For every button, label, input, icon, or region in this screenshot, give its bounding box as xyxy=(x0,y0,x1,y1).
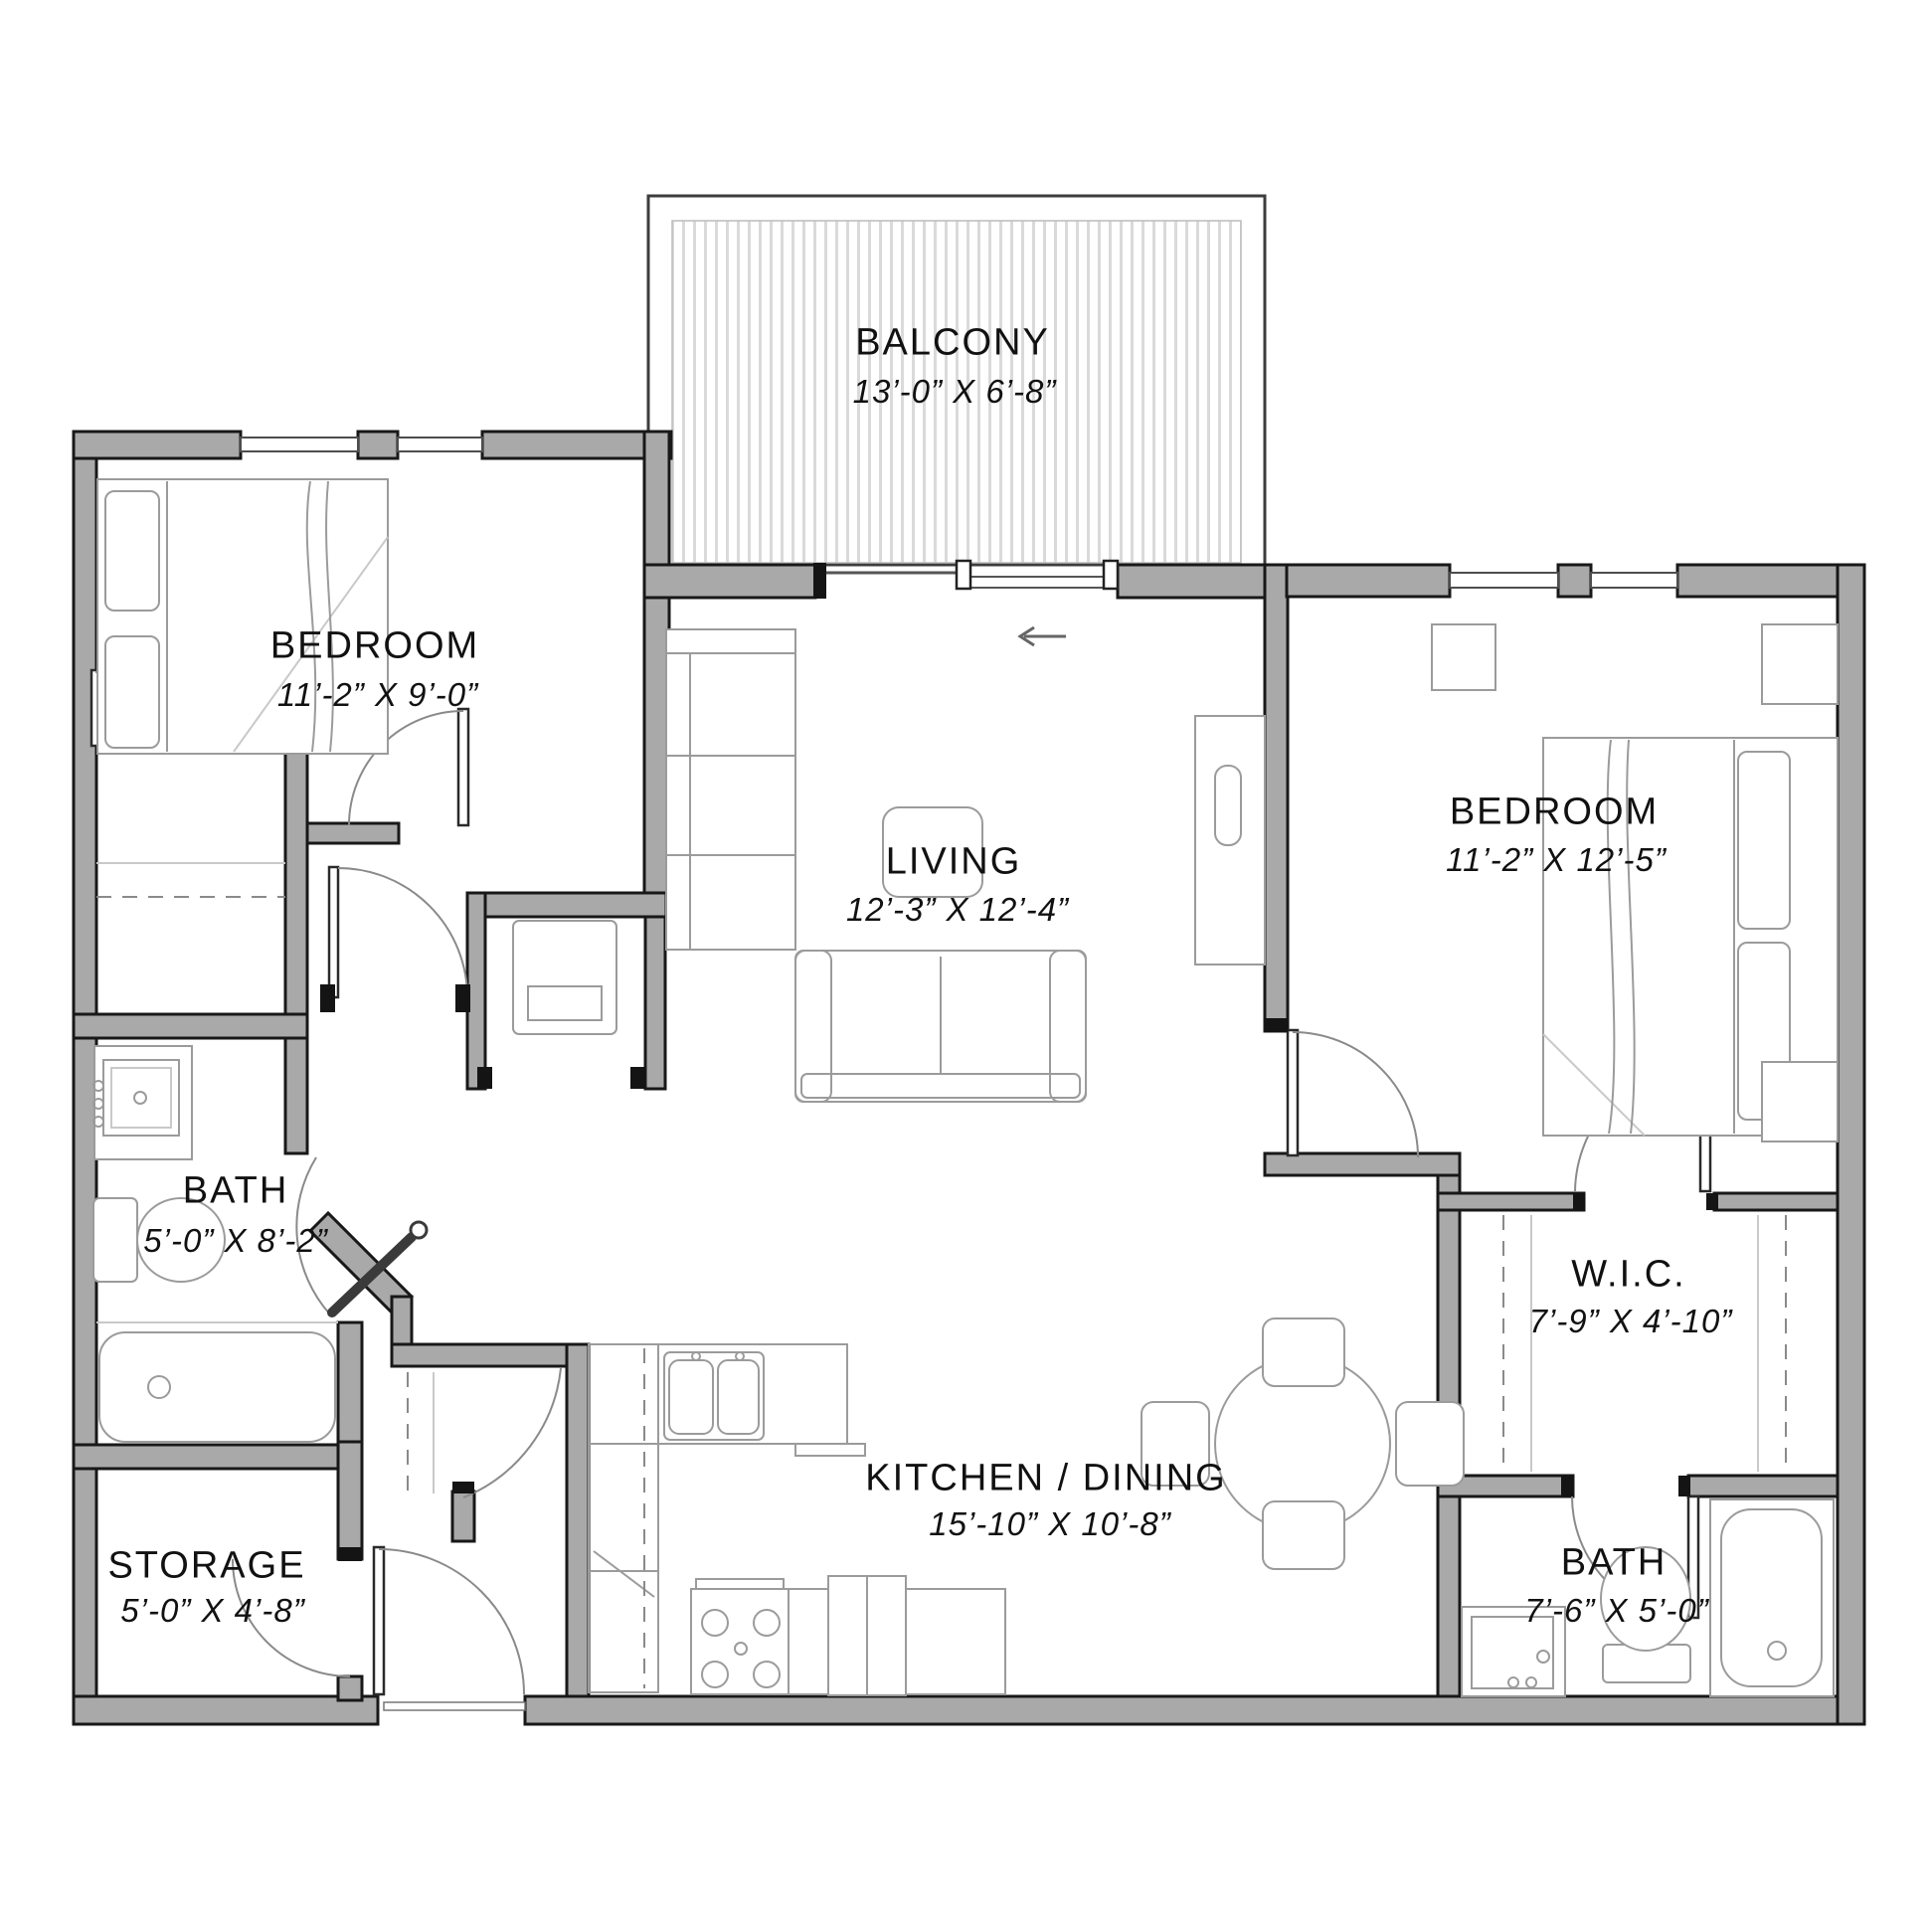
room-dims-kitchen-dining: 15’-10” X 10’-8” xyxy=(929,1505,1170,1543)
wall-hall-stub xyxy=(452,1492,474,1541)
room-dims-storage: 5’-0” X 4’-8” xyxy=(120,1592,304,1630)
window-bedroom1-b xyxy=(398,438,482,451)
bath2-tub xyxy=(1710,1499,1834,1696)
dining-chair xyxy=(1396,1402,1464,1486)
wall-bath1-north xyxy=(74,1014,307,1038)
kitchen-cabinet xyxy=(906,1589,1005,1694)
wall-south-left xyxy=(74,1696,378,1724)
kitchen-counter xyxy=(789,1589,828,1694)
room-label-bedroom-2: BEDROOM xyxy=(1450,791,1659,834)
room-dims-bath-1: 5’-0” X 8’-2” xyxy=(143,1222,327,1260)
kitchen-fridge xyxy=(828,1576,906,1695)
room-label-bath-1: BATH xyxy=(183,1170,289,1213)
wall-bedroom1-door-stub xyxy=(307,823,399,843)
wall-bedroom2-west xyxy=(1265,565,1288,1031)
dining-set xyxy=(1142,1318,1464,1569)
wall-north-right-a xyxy=(1287,565,1450,597)
media-shelf xyxy=(666,629,795,950)
kitchen-hall-door xyxy=(452,1368,561,1497)
room-dims-living: 12’-3” X 12’-4” xyxy=(846,891,1069,929)
room-label-living: LIVING xyxy=(886,841,1022,884)
nightstand xyxy=(1762,1062,1838,1142)
room-label-balcony: BALCONY xyxy=(855,322,1050,365)
balcony-door-arrow xyxy=(1020,627,1066,645)
kitchen-sink-counter xyxy=(658,1344,865,1456)
room-label-bath-2: BATH xyxy=(1561,1542,1668,1585)
room-dims-bedroom-2: 11’-2” X 12’-5” xyxy=(1446,841,1667,879)
wall-living-north-b xyxy=(1118,565,1288,598)
entry-hall-closet xyxy=(408,1372,434,1493)
wall-laundry-east xyxy=(645,917,665,1089)
window-bedroom2-a xyxy=(1450,573,1558,588)
room-label-storage: STORAGE xyxy=(107,1545,305,1588)
wall-storage-east-lower xyxy=(338,1676,362,1700)
pillow xyxy=(1738,752,1790,929)
dining-chair xyxy=(1263,1501,1344,1569)
floor-plan-drawing xyxy=(0,0,1932,1932)
wall-storage-east-upper xyxy=(338,1442,362,1559)
nightstand xyxy=(1762,624,1838,704)
hall-door xyxy=(320,867,470,1012)
sofa xyxy=(795,951,1086,1102)
wall-hall-connector-h xyxy=(392,1344,571,1366)
laundry-closet xyxy=(477,921,645,1089)
pillow xyxy=(105,491,159,611)
bath1-tub xyxy=(99,1332,335,1442)
room-label-kitchen-dining: KITCHEN / DINING xyxy=(865,1458,1226,1500)
entry-door xyxy=(374,1547,525,1710)
wall-kitchen-west xyxy=(567,1344,589,1696)
wall-west xyxy=(74,432,96,1724)
bath1-sink xyxy=(93,1046,192,1159)
room-dims-balcony: 13’-0” X 6’-8” xyxy=(853,373,1057,411)
wall-wic-north-b xyxy=(1714,1193,1838,1210)
room-label-wic: W.I.C. xyxy=(1571,1254,1685,1297)
room-label-bedroom-1: BEDROOM xyxy=(270,625,479,668)
wall-living-north-a xyxy=(644,565,815,598)
wall-wic-north-a xyxy=(1438,1193,1584,1210)
kitchen-stove xyxy=(691,1579,789,1694)
window-bedroom2-b xyxy=(1591,573,1677,588)
pillow xyxy=(105,636,159,748)
dresser xyxy=(1432,624,1495,690)
floor-plan: BALCONY 13’-0” X 6’-8” BEDROOM 11’-2” X … xyxy=(0,0,1932,1932)
room-dims-wic: 7’-9” X 4’-10” xyxy=(1529,1303,1733,1340)
bedroom2-door xyxy=(1265,1018,1418,1157)
window-bedroom1-a xyxy=(241,438,358,451)
wall-storage-north xyxy=(74,1445,347,1469)
wall-hall-bath1 xyxy=(285,714,307,1153)
wall-bedroom1-south xyxy=(467,893,666,917)
wall-bath2-north-b xyxy=(1688,1476,1838,1496)
wall-north-right-mullion xyxy=(1558,565,1591,597)
balcony-slider xyxy=(813,561,1118,645)
bedroom2-furniture xyxy=(1432,624,1838,1142)
wall-south-right xyxy=(525,1696,1864,1724)
wall-north-left-mullion xyxy=(358,432,398,458)
console-table xyxy=(1195,716,1265,965)
room-dims-bedroom-1: 11’-2” X 9’-0” xyxy=(277,676,478,714)
wall-east xyxy=(1838,565,1864,1724)
room-dims-bath-2: 7’-6” X 5’-0” xyxy=(1524,1592,1708,1630)
kitchen-cabinet-run xyxy=(589,1344,658,1692)
wall-bedroom2-south xyxy=(1265,1153,1460,1175)
wall-north-left xyxy=(74,432,241,458)
dining-chair xyxy=(1263,1318,1344,1386)
